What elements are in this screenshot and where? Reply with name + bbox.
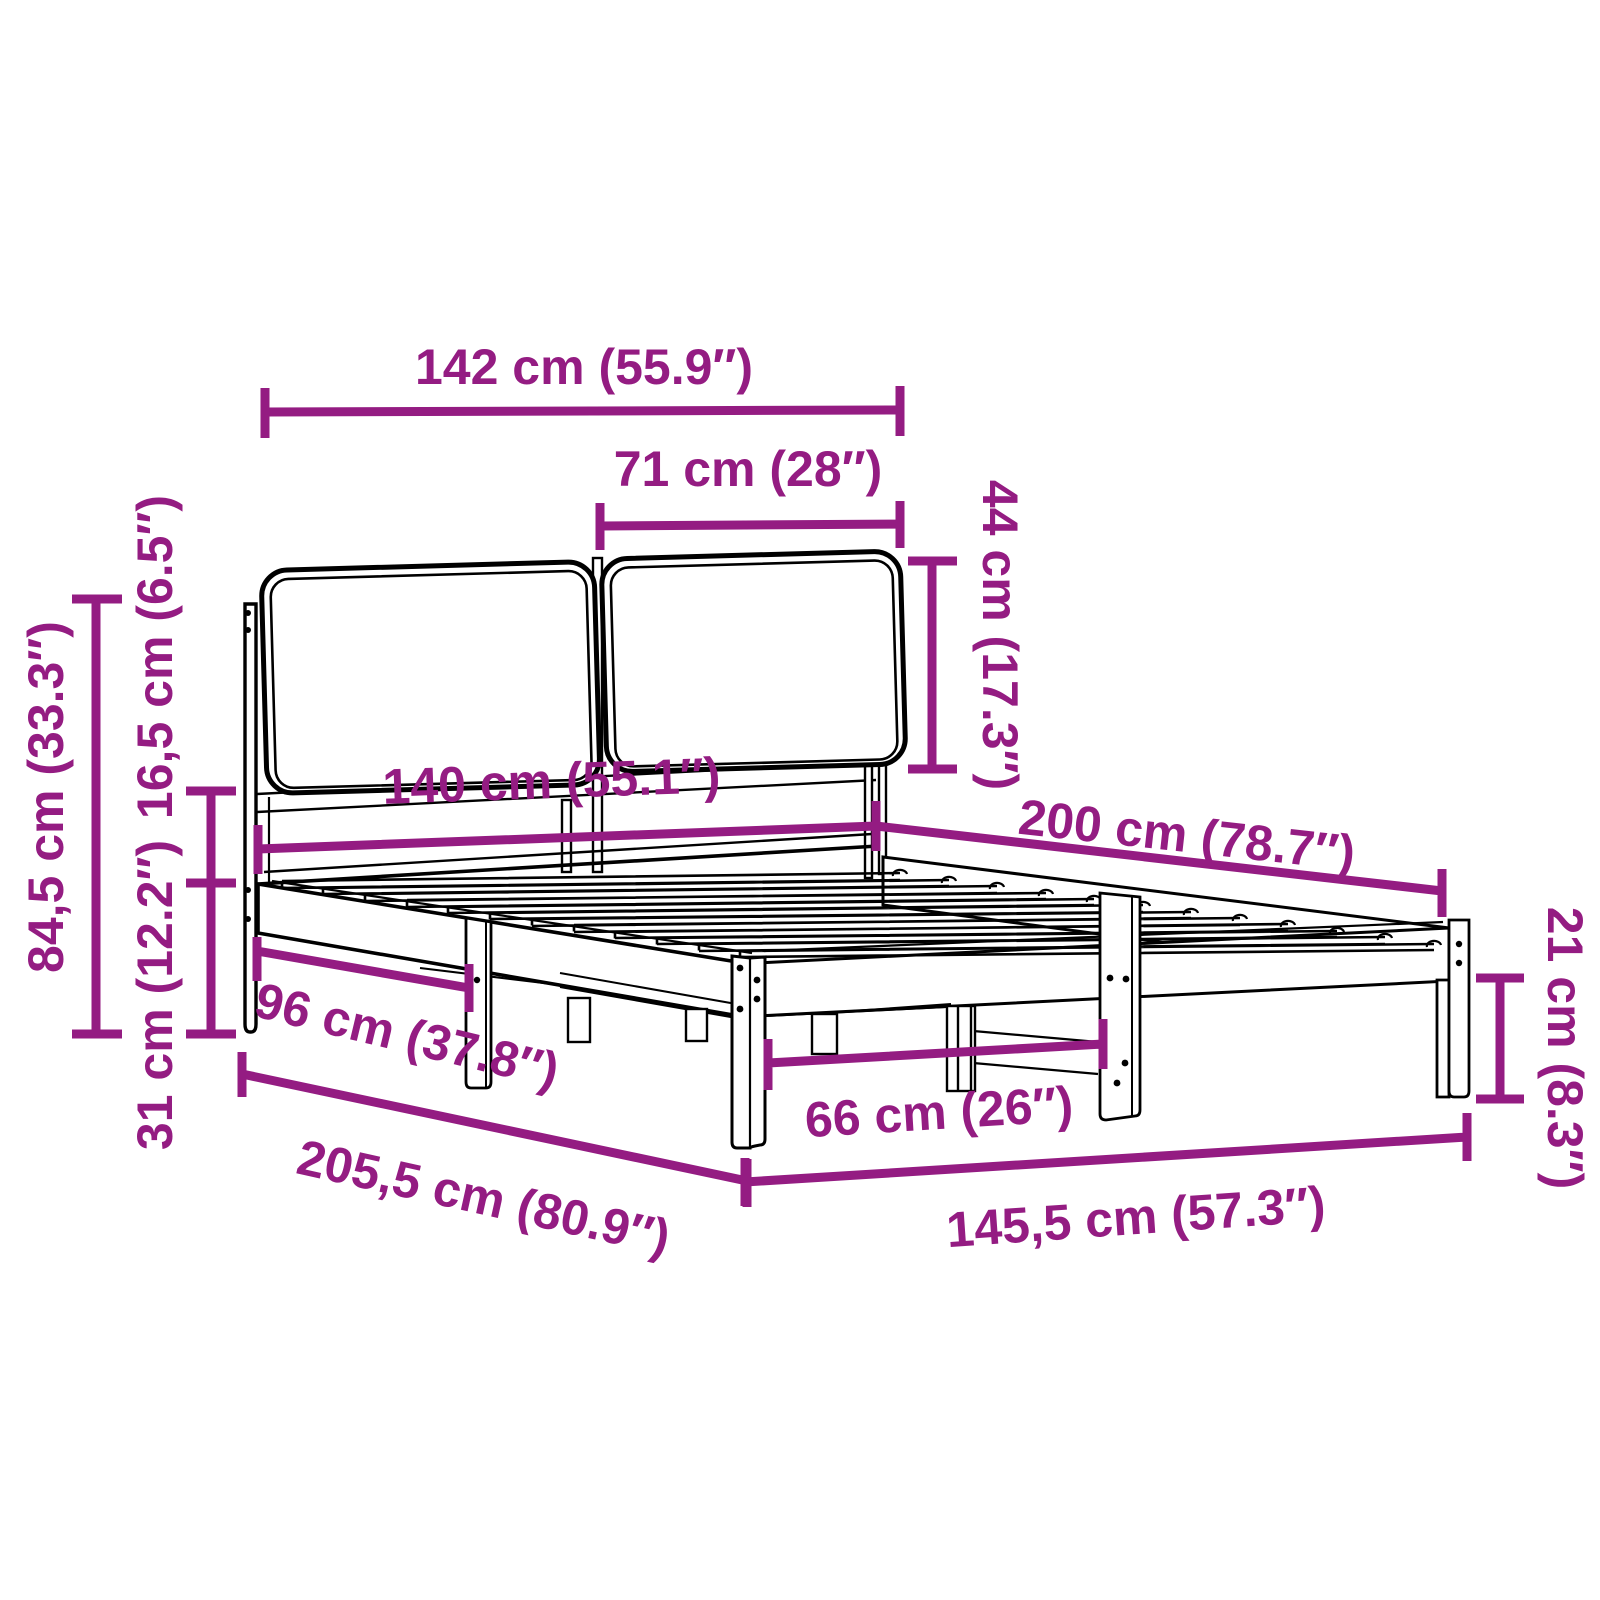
svg-text:71 cm (28″): 71 cm (28″) — [614, 441, 883, 497]
svg-text:142 cm (55.9″): 142 cm (55.9″) — [415, 339, 753, 395]
svg-text:84,5 cm (33.3″): 84,5 cm (33.3″) — [18, 621, 74, 973]
svg-text:140 cm (55.1″): 140 cm (55.1″) — [382, 747, 722, 815]
svg-text:16,5 cm (6.5″): 16,5 cm (6.5″) — [127, 495, 183, 819]
svg-text:21 cm (8.3″): 21 cm (8.3″) — [1537, 907, 1593, 1189]
svg-text:31 cm (12.2″): 31 cm (12.2″) — [127, 840, 183, 1150]
svg-text:44 cm (17.3″): 44 cm (17.3″) — [972, 480, 1028, 790]
